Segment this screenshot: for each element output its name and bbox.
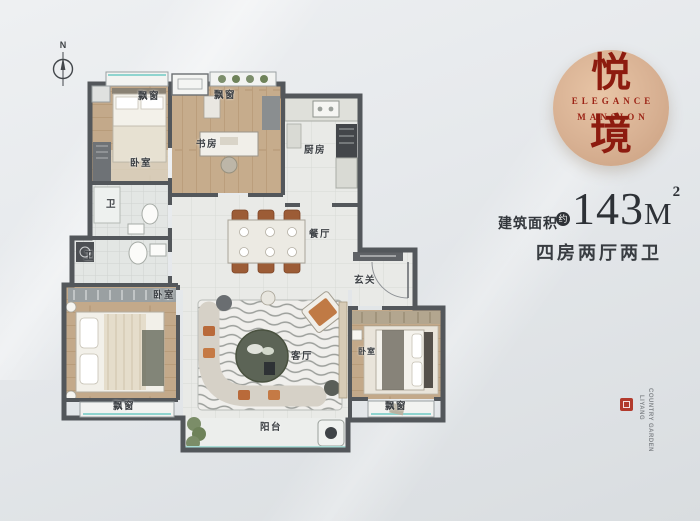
label-bath-upper: 卫 [106,200,117,210]
label-bedroom-bottom-right: 卧室 [358,347,376,357]
logo-char-bottom: 境 [553,114,669,158]
label-balcony: 阳台 [260,423,282,433]
label-kitchen: 厨房 [304,146,326,156]
watermark-country-garden: COUNTRY GARDEN [647,388,653,452]
label-dining: 餐厅 [309,230,331,240]
area-value: 143M2 [572,182,681,235]
logo-english-1: ELEGANCE [553,96,669,106]
approx-badge: 约 [556,212,570,226]
label-bay-window-bottom-right: 飘窗 [385,402,407,412]
area-number: 143 [572,183,644,234]
floorplan-poster: N [0,0,700,521]
area-unit: M [644,196,673,231]
dining-furniture [228,210,305,273]
layout-summary: 四房两厅两卫 [536,239,662,265]
watermark-liyang: LIYANG [638,395,644,420]
label-bath-lower: 卫 [84,252,95,262]
label-bedroom-bottom-left: 卧室 [153,291,175,301]
label-study: 书房 [196,140,218,150]
area-superscript: 2 [673,184,682,200]
area-headline: 建筑面积 约 143M2 [498,196,698,240]
label-bedroom-top-left: 卧室 [130,159,152,169]
area-label: 建筑面积 [498,213,558,233]
floorplan-drawing [0,0,470,470]
brand-logo: 悦 ELEGANCE MANSION 境 [553,50,669,168]
label-entry: 玄关 [354,276,376,286]
logo-char-top: 悦 [553,52,669,94]
label-bay-window-study: 飘窗 [214,91,236,101]
label-bay-window-bottom-left: 飘窗 [113,402,135,412]
label-bay-window-top-left: 飘窗 [138,92,160,102]
label-living: 客厅 [291,352,313,362]
seal-stamp-icon [620,398,633,411]
